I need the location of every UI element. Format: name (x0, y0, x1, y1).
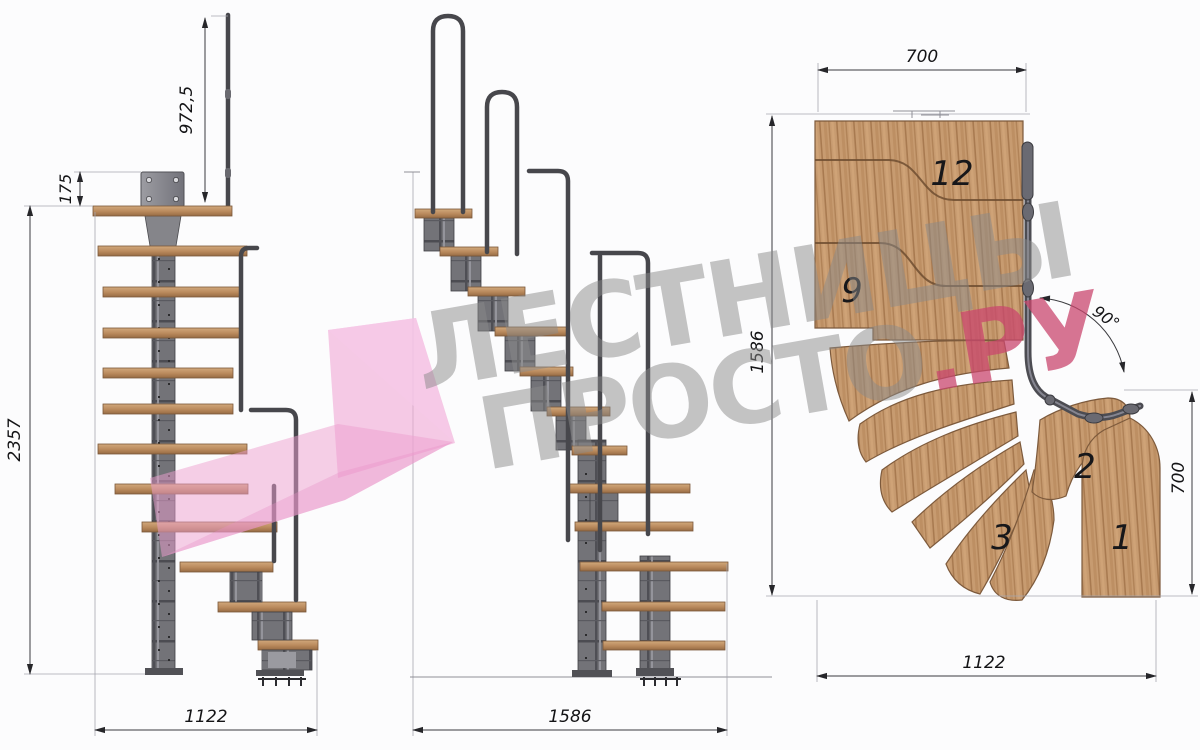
bolt-hole (146, 177, 151, 182)
anchor-bolts (640, 677, 681, 686)
post-foot (636, 668, 674, 676)
step-plank (180, 562, 273, 572)
handrail-joint (225, 89, 231, 99)
front-steps (93, 206, 318, 650)
step-plank (103, 404, 233, 414)
bolt-hole (173, 196, 178, 201)
step-plank (603, 641, 725, 650)
handrail-loop (487, 92, 517, 254)
handrail-segment (241, 248, 257, 410)
base-foot (256, 670, 304, 676)
bolt-hole (173, 177, 178, 182)
step-plank (218, 602, 306, 612)
drawing-canvas: 972,5 175 2357 1122 (0, 0, 1200, 750)
step-label-3: 3 (991, 518, 1013, 558)
step-plank (103, 287, 240, 297)
step-1 (1082, 418, 1160, 597)
step-label-1: 1 (1111, 518, 1133, 558)
step-plank (258, 640, 318, 650)
column-foot (145, 668, 183, 675)
step-label-2: 2 (1074, 447, 1096, 487)
dim-plate-height: 175 (56, 174, 75, 205)
dim-plan-right-width: 700 (1169, 462, 1189, 494)
handrail-loop (433, 16, 463, 212)
front-post (640, 556, 670, 674)
baluster (1045, 395, 1055, 405)
step-plank (580, 562, 728, 571)
step-module (252, 612, 292, 640)
step-plank (440, 247, 498, 256)
column-foot (572, 670, 612, 677)
mounting-plate (141, 172, 184, 207)
staircase-technical-drawing: 972,5 175 2357 1122 (0, 0, 1200, 750)
module-panel (268, 652, 296, 668)
step-module (424, 218, 454, 251)
step-plank (575, 522, 693, 531)
baluster (1123, 404, 1139, 414)
anchor-bolts (258, 677, 306, 686)
dim-total-height: 2357 (5, 418, 25, 461)
step-plank (602, 602, 725, 611)
step-plank (103, 368, 233, 378)
dim-plan-bottom-width: 1122 (962, 653, 1005, 673)
step-label-12: 12 (930, 154, 973, 194)
dim-side-run: 1586 (548, 707, 591, 727)
dim-plan-top-width: 700 (906, 47, 938, 67)
step-module (590, 493, 618, 526)
step-plank (98, 444, 247, 454)
dim-rail-height: 972,5 (177, 86, 197, 135)
step-plank (568, 484, 690, 493)
baluster (1085, 413, 1103, 423)
front-elevation-view: 972,5 175 2357 1122 (5, 15, 318, 736)
bolt-hole (146, 196, 151, 201)
wall-bracket-mark (893, 111, 955, 118)
dim-front-depth: 1122 (184, 707, 227, 727)
handrail-joint (225, 168, 231, 178)
step-plank (93, 206, 232, 216)
step-plank (103, 328, 240, 338)
step-module (230, 572, 262, 602)
step-plank (98, 246, 247, 256)
